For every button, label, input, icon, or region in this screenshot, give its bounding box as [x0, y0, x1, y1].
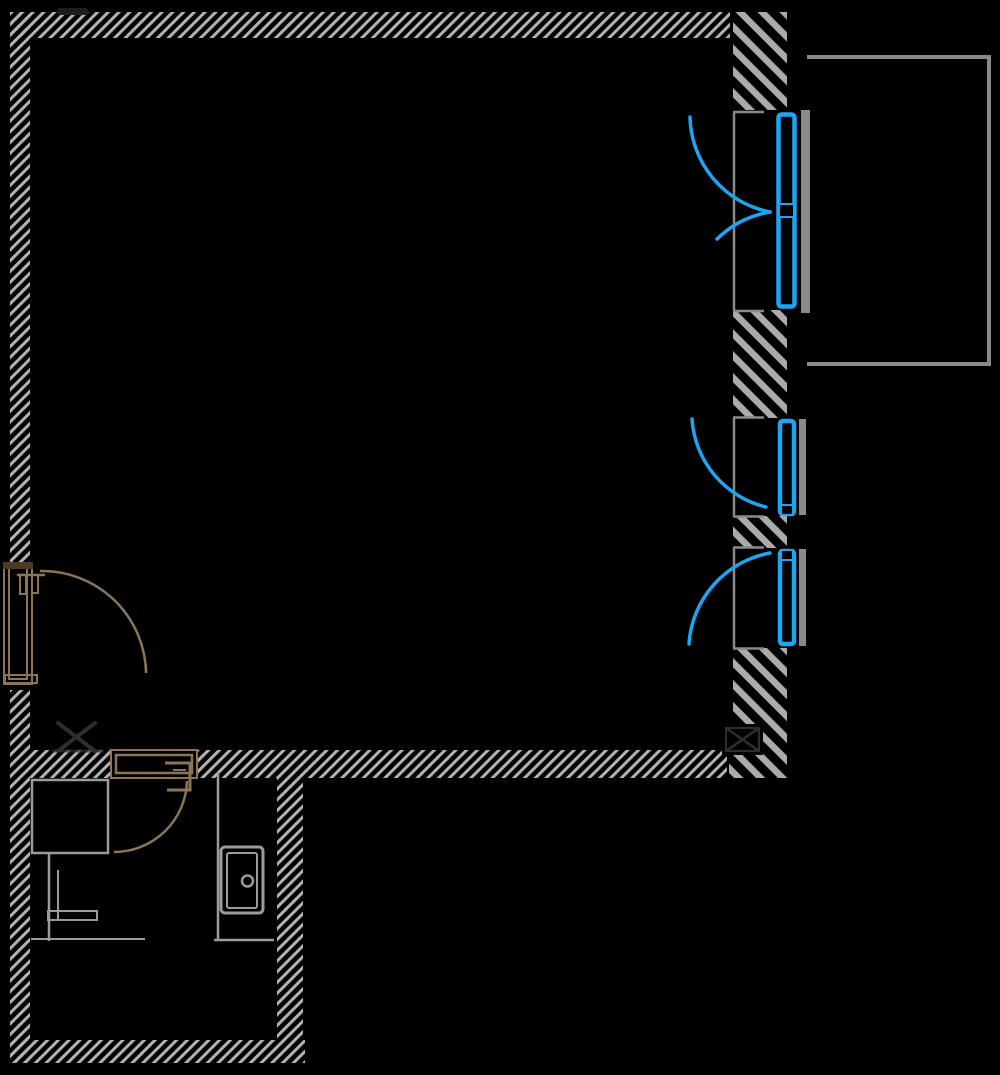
wall-right-segment-4	[733, 648, 787, 728]
door-hinge-leg-1	[20, 575, 26, 594]
door-leaf-inner	[9, 568, 27, 679]
wall-bathroom-right	[277, 778, 303, 1040]
wall-left-lower	[10, 690, 30, 1063]
french-window-top-right	[690, 110, 810, 313]
entry-door-left	[3, 562, 146, 684]
door-swing-arc	[114, 781, 187, 852]
wall-bathroom-bottom	[10, 1040, 305, 1063]
window-swing-arc-lower	[717, 212, 770, 239]
wall-bathroom-top-left	[30, 750, 110, 778]
wall-top	[10, 12, 730, 38]
faint-label-artifact	[57, 8, 88, 15]
walls	[10, 12, 787, 1063]
wall-bottom-main	[198, 750, 727, 778]
bathroom-fixtures	[31, 772, 274, 941]
door-top-bar	[3, 562, 33, 569]
washbasin-bar	[48, 911, 97, 920]
window-leaf	[780, 551, 794, 644]
window-swing-arc	[689, 553, 770, 644]
window-swing-arc	[692, 419, 766, 507]
wall-right-segment-3	[733, 516, 787, 548]
wall-left-upper	[10, 12, 30, 563]
window-middle-right	[692, 418, 806, 517]
window-swing-arc-upper	[690, 117, 770, 212]
door-swing-arc	[40, 571, 146, 671]
wall-right-segment-2	[733, 310, 787, 418]
window-handle	[781, 505, 793, 515]
appliance-knob	[242, 876, 253, 887]
window-handle	[779, 204, 794, 217]
window-outer-frame	[799, 549, 806, 646]
wall-right-segment-1	[733, 12, 787, 110]
window-leaf	[780, 421, 794, 514]
window-handle	[781, 550, 793, 560]
door-hinge-leg-2	[32, 575, 38, 593]
window-outer-frame	[799, 419, 806, 515]
shower-tray-square	[32, 780, 108, 853]
x-marker-left	[52, 723, 103, 751]
balcony-outline	[807, 57, 989, 364]
bathroom-door	[111, 750, 197, 852]
window-lower-right	[689, 548, 806, 649]
markers	[52, 8, 761, 753]
floor-plan-canvas	[0, 0, 1000, 1075]
window-outer-frame	[801, 110, 810, 313]
x-box-duct-right	[724, 726, 761, 753]
floor-plan-svg	[0, 0, 1000, 1075]
